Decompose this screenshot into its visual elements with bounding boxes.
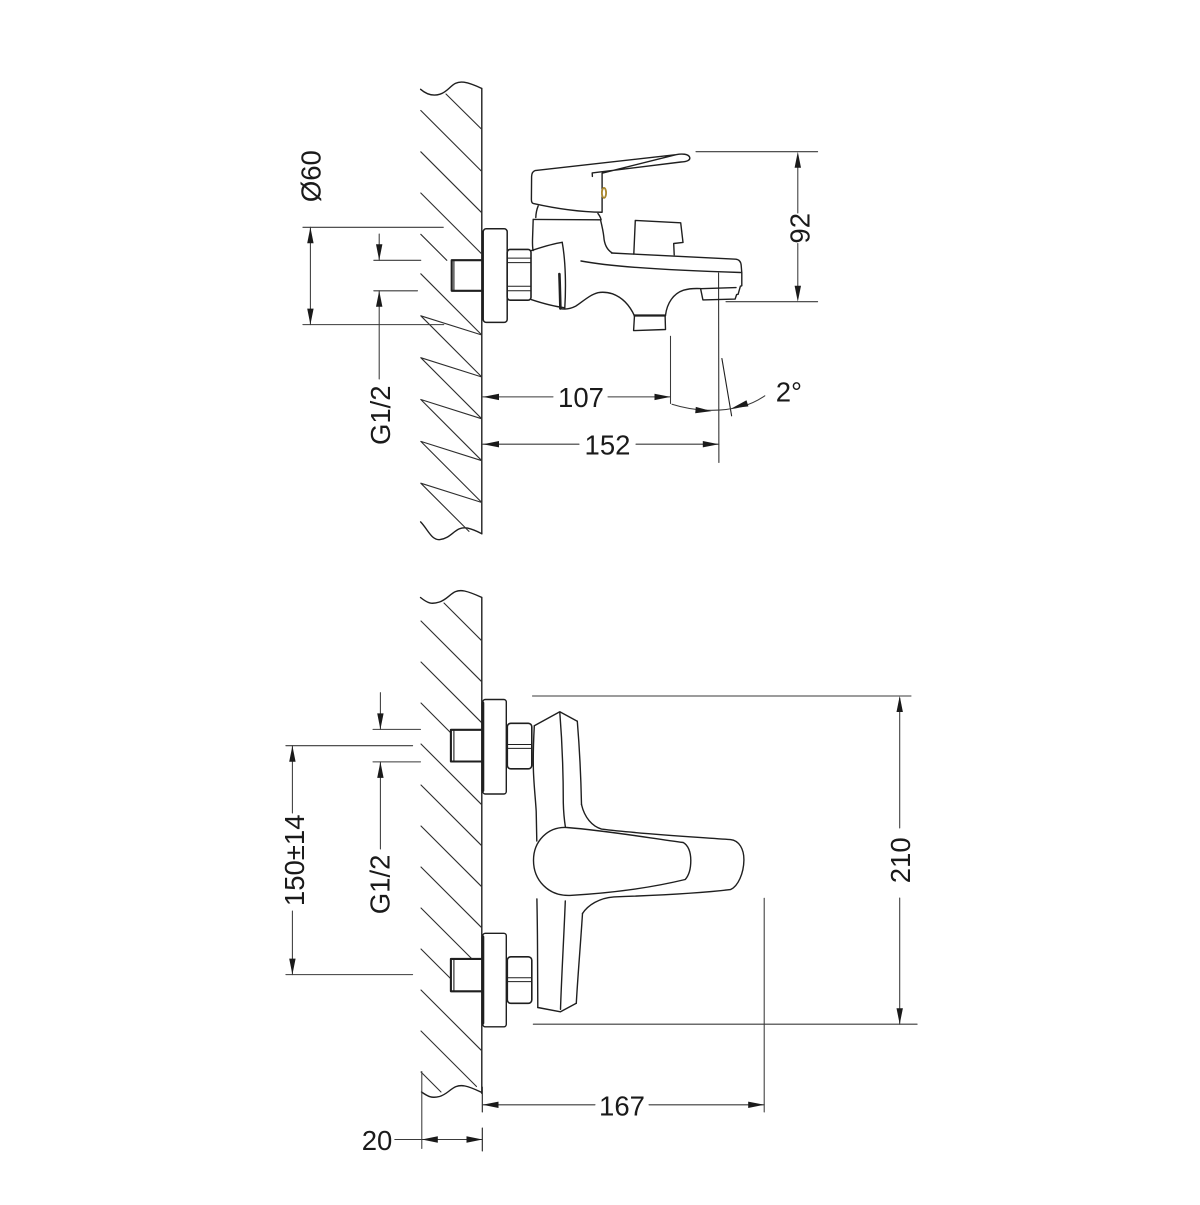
svg-text:152: 152 xyxy=(585,430,631,461)
svg-text:G1/2: G1/2 xyxy=(365,855,396,915)
svg-text:Ø60: Ø60 xyxy=(295,150,326,202)
svg-text:20: 20 xyxy=(362,1125,393,1156)
svg-text:167: 167 xyxy=(599,1090,645,1121)
svg-text:G1/2: G1/2 xyxy=(365,385,396,445)
svg-text:150±14: 150±14 xyxy=(279,815,310,907)
svg-text:210: 210 xyxy=(885,837,916,883)
svg-text:107: 107 xyxy=(558,382,604,413)
svg-text:92: 92 xyxy=(784,213,815,244)
svg-text:2°: 2° xyxy=(776,377,802,408)
